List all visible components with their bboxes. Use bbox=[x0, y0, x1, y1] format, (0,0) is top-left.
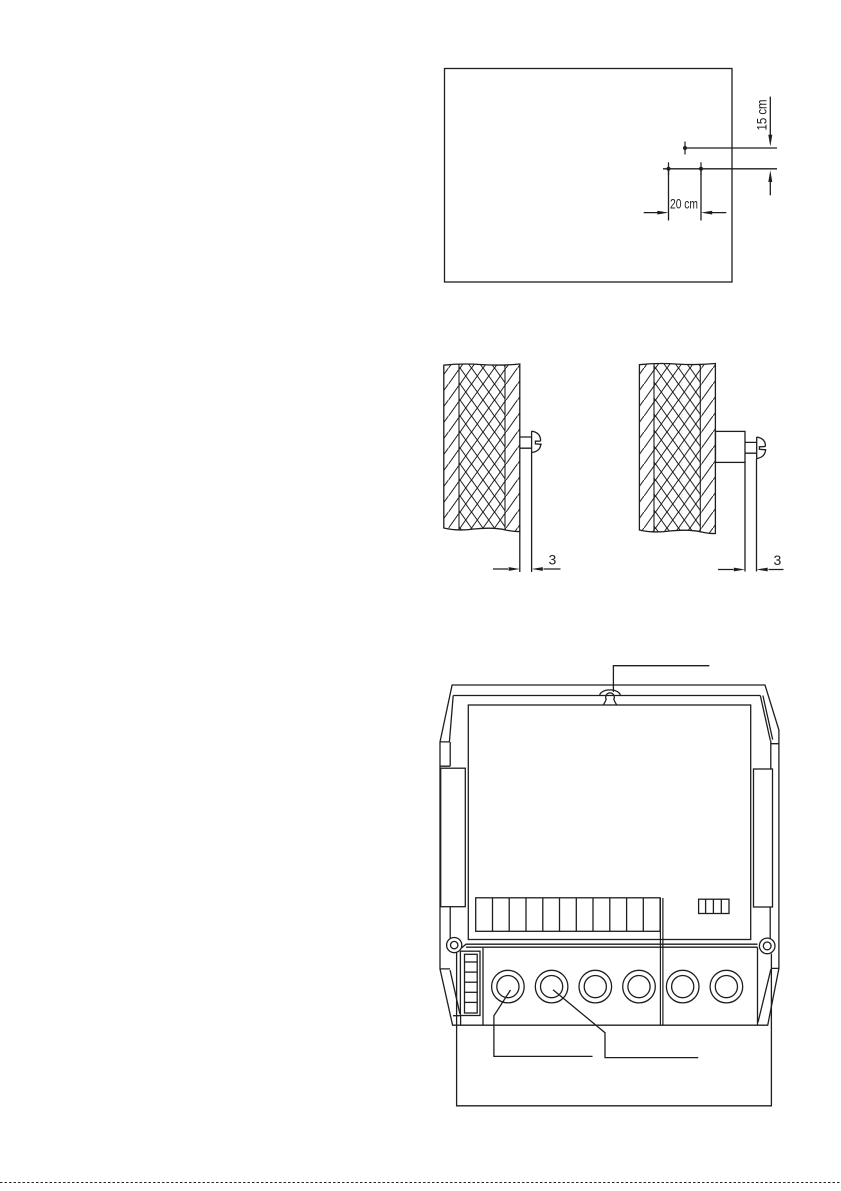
svg-text:20 cm: 20 cm bbox=[670, 197, 698, 212]
svg-text:15 cm: 15 cm bbox=[755, 100, 770, 131]
svg-text:3: 3 bbox=[549, 552, 557, 568]
svg-text:3: 3 bbox=[774, 552, 782, 568]
